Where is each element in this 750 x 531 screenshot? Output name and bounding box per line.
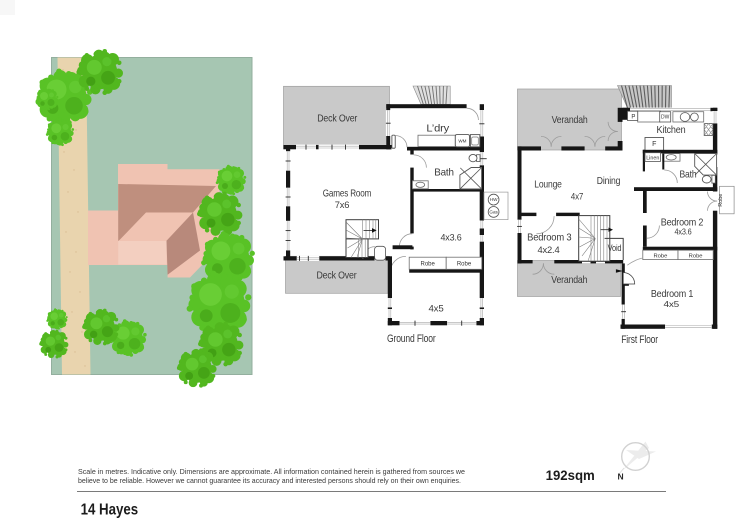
svg-text:believe to be reliable. Howeve: believe to be reliable. However we canno… — [78, 477, 461, 485]
svg-text:Deck Over: Deck Over — [317, 269, 358, 281]
svg-text:P: P — [631, 114, 635, 120]
svg-text:L’dry: L’dry — [426, 122, 450, 134]
svg-text:Verandah: Verandah — [551, 274, 587, 286]
svg-text:Ground Floor: Ground Floor — [387, 333, 436, 345]
svg-text:F: F — [652, 141, 656, 148]
svg-text:Robe: Robe — [718, 194, 724, 207]
svg-text:14 Hayes: 14 Hayes — [81, 501, 139, 518]
svg-text:Bath: Bath — [680, 169, 697, 181]
svg-text:192sqm: 192sqm — [546, 468, 595, 483]
svg-text:WM: WM — [458, 139, 466, 144]
svg-text:4x7: 4x7 — [571, 192, 584, 203]
svg-text:Robe: Robe — [689, 254, 703, 260]
svg-text:HW: HW — [490, 197, 498, 202]
svg-text:Robe: Robe — [653, 254, 667, 260]
svg-text:Bath: Bath — [434, 166, 454, 178]
svg-text:4x5: 4x5 — [664, 299, 680, 309]
svg-text:Robe: Robe — [421, 261, 436, 267]
svg-text:4x3.6: 4x3.6 — [675, 227, 692, 237]
svg-text:Robe: Robe — [457, 261, 472, 267]
svg-text:4x5: 4x5 — [429, 304, 444, 315]
svg-text:7x6: 7x6 — [335, 200, 350, 211]
svg-text:Scale in metres. Indicative on: Scale in metres. Indicative only. Dimens… — [78, 468, 465, 476]
svg-text:DW: DW — [661, 115, 670, 121]
svg-text:N: N — [618, 472, 624, 482]
svg-text:Verandah: Verandah — [552, 114, 588, 126]
svg-text:Bedroom 1: Bedroom 1 — [651, 288, 694, 300]
svg-text:Dining: Dining — [597, 175, 621, 187]
svg-text:Kitchen: Kitchen — [657, 124, 686, 136]
svg-text:First Floor: First Floor — [621, 334, 658, 346]
svg-text:Bedroom 3: Bedroom 3 — [527, 231, 572, 243]
svg-text:Games Room: Games Room — [323, 187, 372, 199]
svg-text:4x3.6: 4x3.6 — [441, 233, 462, 244]
svg-text:Deck Over: Deck Over — [317, 112, 358, 124]
svg-text:Linen: Linen — [646, 155, 659, 161]
svg-text:4x2.4: 4x2.4 — [538, 245, 560, 256]
svg-text:Void: Void — [608, 243, 622, 253]
svg-text:Gas: Gas — [489, 210, 498, 215]
svg-text:Lounge: Lounge — [534, 178, 562, 190]
